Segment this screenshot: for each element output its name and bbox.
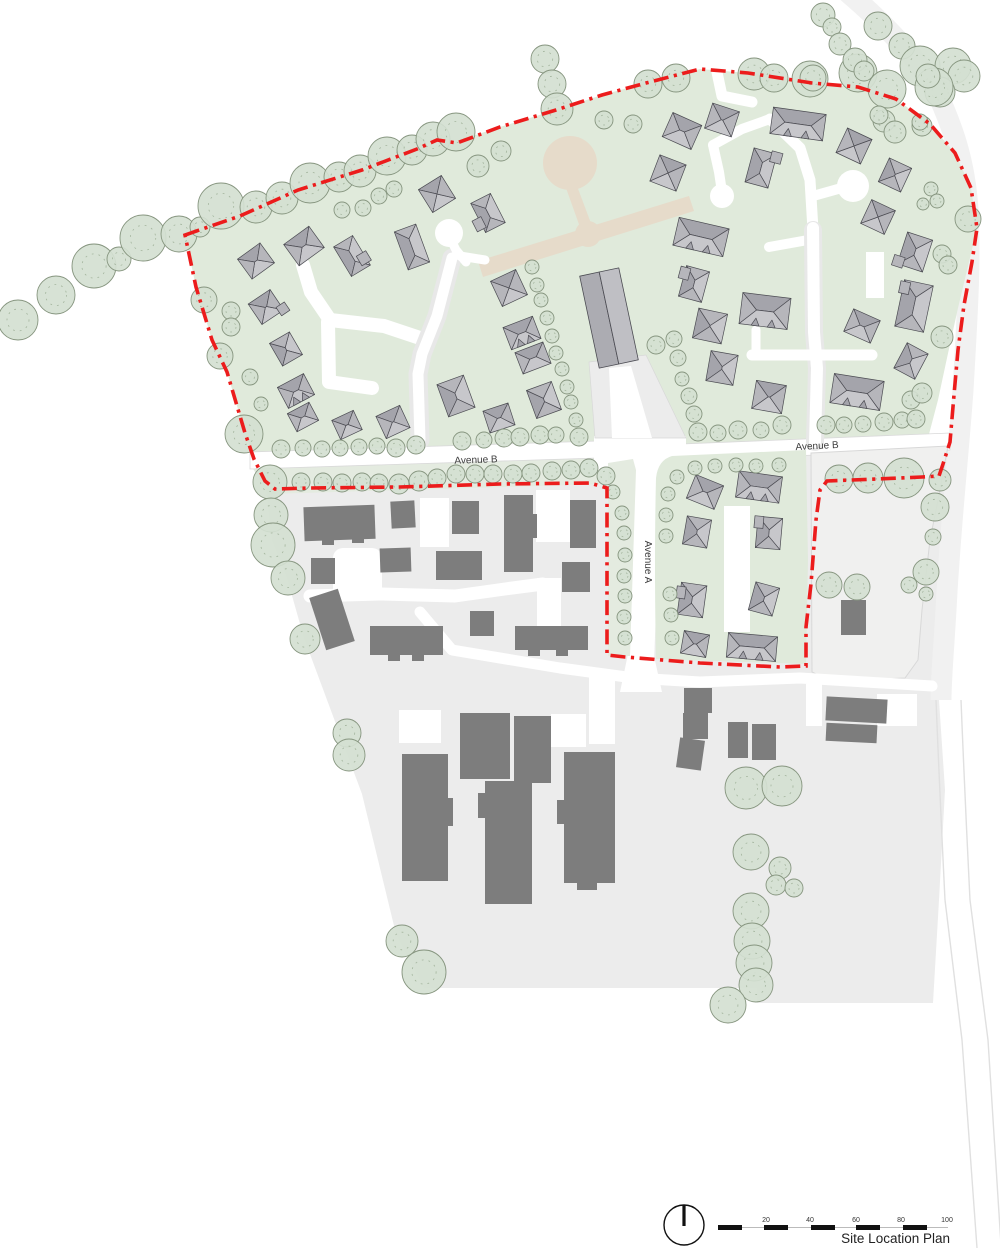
svg-text:Avenue A: Avenue A (642, 541, 653, 584)
svg-text:20: 20 (762, 1217, 770, 1224)
svg-text:80: 80 (897, 1217, 905, 1224)
svg-text:Avenue B: Avenue B (795, 440, 839, 453)
svg-text:60: 60 (852, 1217, 860, 1224)
svg-text:Site Location Plan: Site Location Plan (841, 1231, 950, 1246)
svg-text:Avenue B: Avenue B (454, 454, 498, 467)
svg-text:40: 40 (806, 1217, 814, 1224)
svg-text:100: 100 (941, 1217, 953, 1224)
